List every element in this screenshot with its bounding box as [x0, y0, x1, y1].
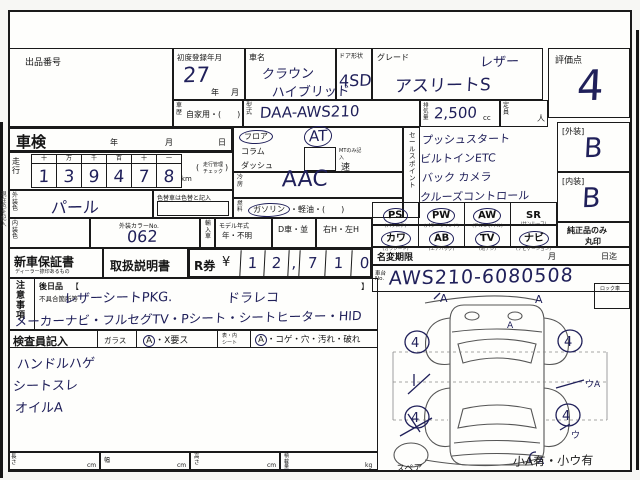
- equipment-code: TV: [475, 231, 500, 248]
- exterior-rating-cell: [外装] B: [557, 122, 630, 172]
- model-year-value: 年・不明: [222, 230, 252, 241]
- mark-windshield: A: [507, 321, 514, 331]
- mark-rear-right: ウ: [571, 430, 580, 441]
- auction-number-label: 出品番号: [25, 55, 61, 68]
- genuine-parts-cell: 純正品のみ 丸印: [557, 222, 630, 248]
- displacement-unit: cc: [483, 114, 491, 122]
- exterior-rating-value: B: [583, 133, 603, 164]
- inspector-glass-cell: ガラス: [97, 331, 137, 347]
- first-registration-year-value: 27: [182, 63, 210, 87]
- chassis-number-cell: 車台 No. AWS210-6080508: [372, 265, 630, 292]
- score-cell: 評価点 4: [548, 48, 630, 118]
- equipment-item-kawa: カワ(カワシート): [372, 225, 419, 248]
- transfer-deadline-cell: 名変期限 月 日迄: [372, 246, 630, 265]
- warranty-cell: 新車保証書 ディーラー捺印あるもの: [8, 248, 103, 278]
- import-cell: 輸入車: [200, 218, 215, 248]
- car-diagram: A A A 4 4 4 4 ウA ウ A: [380, 290, 630, 472]
- shift-at-value: AT: [303, 126, 332, 147]
- mileage-col-header: 十: [32, 155, 56, 164]
- equipment-item-sr: SR(サンルーフ): [510, 202, 557, 225]
- ticket-digit: 1: [324, 250, 351, 276]
- scan-edge-right: [636, 30, 639, 470]
- inspector-block: 検査員記入 ガラス A・X要ス 表・内 シート A・コゲ・穴・汚れ・破れ ハンド…: [8, 330, 378, 452]
- notes-bracket-close: 】: [361, 281, 369, 292]
- model-code-cell: 型式 DAA-AWS210: [243, 100, 420, 127]
- equipment-item-ab: AB(エアバッグ): [418, 225, 465, 248]
- height-label: 高さ: [194, 454, 200, 466]
- inspector-seat-label2: シート: [222, 339, 237, 346]
- notes-hw-line1a: レザーシートPKG.: [63, 286, 172, 307]
- fuel-rest: ・軽油・( ): [290, 205, 344, 214]
- color-change-box: [157, 201, 229, 216]
- sales-point-line: バック カメラ: [422, 168, 492, 185]
- shift-option-column: コラム: [241, 146, 265, 157]
- equipment-item-pw: PW(パワーウインド): [418, 202, 465, 225]
- model-year-label: モデル年式: [219, 221, 249, 230]
- length-cell: 長さ cm: [8, 452, 100, 470]
- model-code-label: 型式: [246, 103, 252, 116]
- displacement-label: 排気量: [423, 103, 429, 121]
- mileage-label: 走行: [12, 158, 20, 176]
- history-label: 車歴: [176, 103, 182, 116]
- height-cell: 高さ cm: [190, 452, 280, 470]
- equipment-grid: PS(パワステ) PW(パワーウインド) AW(アルミホイル) SR(サンルーフ…: [372, 202, 557, 248]
- color-number-value: 062: [126, 227, 158, 247]
- car-name-cell: 車名 クラウン ハイブリッド: [245, 48, 336, 100]
- inspector-note: ハンドルハゲ: [16, 352, 95, 372]
- ticket-digit: 7: [298, 250, 325, 276]
- seat-rest: ・コゲ・穴・汚れ・破れ: [267, 335, 361, 345]
- equipment-code: PW: [427, 208, 456, 225]
- auction-number-cell: 出品番号: [8, 48, 173, 127]
- chassis-number-value: AWS210-6080508: [388, 264, 574, 289]
- headlight-right: [508, 312, 522, 320]
- door-shape-value: 4SD: [338, 71, 372, 91]
- door-shape-label: ドア形状: [339, 51, 367, 60]
- rear-window: [458, 405, 536, 428]
- exterior-color-value: パール: [50, 194, 99, 219]
- door-shape-cell: ドア形状 4SD: [336, 48, 372, 100]
- history-value: 自家用・( ): [186, 109, 240, 120]
- mileage-digit: 9: [81, 164, 106, 190]
- car-name-line1: クラウン: [261, 63, 314, 83]
- mileage-cell: 走行 十1 万3 千9 百4 十7 一8 km ( 走行管理 チェック ): [8, 152, 233, 190]
- warranty-sub: ディーラー捺印あるもの: [15, 268, 70, 275]
- inspector-note: オイルA: [14, 397, 63, 417]
- notes-block: 注意事項 後日品 【 】 不具合箇所等 レザーシートPKG. ドラレコ メーカー…: [8, 278, 378, 330]
- dealer-car-cell: D車・並: [272, 218, 316, 248]
- shift-option-dash: ダッシュ: [241, 160, 273, 171]
- fuel-label: 燃料: [237, 201, 243, 213]
- transfer-until: 日迄: [601, 251, 617, 262]
- right-side-arrow: [556, 380, 584, 388]
- capacity-label: 定員: [503, 103, 509, 116]
- mileage-digit: 8: [156, 164, 181, 190]
- equipment-code: ナビ: [518, 230, 549, 247]
- grade-cell: グレード レザー アスリートS: [372, 48, 543, 100]
- inspector-note: シートスレ: [12, 374, 78, 394]
- genuine-parts-note1: 純正品のみ: [567, 225, 607, 236]
- interior-rating-value: B: [581, 183, 601, 214]
- exterior-rating-label: [外装]: [562, 126, 584, 137]
- history-cell: 車歴 自家用・( ): [173, 100, 243, 127]
- shaken-day: 日: [218, 137, 226, 148]
- inspector-seat-label1: 表・内: [222, 332, 237, 339]
- displacement-cell: 排気量 2,500 cc: [420, 100, 500, 127]
- shift-option-floor: フロア: [239, 130, 273, 144]
- notes-hw-line1b: ドラレコ: [226, 287, 279, 307]
- interior-color-label: 内装色: [12, 221, 18, 241]
- width-cell: 幅 cm: [100, 452, 190, 470]
- mileage-col-header: 万: [57, 155, 81, 164]
- grade-label: グレード: [377, 52, 409, 63]
- sales-point-line: プッシュスタート: [422, 130, 511, 148]
- notes-hw-line2: メーカーナビ・フルセグTV・Pシート・シートヒーター・HID: [14, 305, 362, 330]
- windshield: [458, 339, 536, 363]
- car-name-label: 車名: [249, 52, 265, 63]
- import-label: 輸入車: [205, 221, 211, 241]
- glass-grade-circled: A: [143, 335, 156, 347]
- shaken-month: 月: [165, 137, 173, 148]
- ticket-digit: 1: [239, 250, 264, 276]
- shaken-cell: 車検 年 月 日: [8, 127, 233, 152]
- trunk-line1: [454, 441, 540, 444]
- capacity-cell: 定員 人: [500, 100, 548, 127]
- color-change-cell: 色替車は色替と記入: [153, 190, 233, 218]
- mileage-col-header: 百: [107, 155, 131, 164]
- model-year-cell: モデル年式 年・不明: [215, 218, 272, 248]
- manual-label: 取扱説明書: [110, 257, 170, 274]
- recycle-ticket-cell: R券 ¥ 1 2 , 7 1 0: [188, 248, 372, 278]
- interior-color-cell: 内装色: [8, 218, 90, 248]
- first-registration-month-suffix: 月: [231, 87, 239, 98]
- left-side-marks: [408, 374, 430, 394]
- auction-sheet-scan: 現在色を記入 出品番号 初度登録年月 27 年 月 車名 クラウン ハイブリッド…: [0, 0, 640, 480]
- grade-value: アスリートS: [394, 70, 491, 97]
- load-cell: 積載量 kg: [280, 452, 378, 470]
- handle-cell: 右H・左H: [316, 218, 372, 248]
- manual-cell: 取扱説明書: [103, 248, 188, 278]
- score-value: 4: [576, 61, 605, 110]
- fuel-value: ガソリン・軽油・( ): [248, 203, 344, 217]
- load-label: 積載量: [284, 454, 289, 471]
- headlight-left: [465, 312, 479, 320]
- mark-front-right: A: [535, 293, 543, 306]
- equipment-code: SR: [526, 209, 541, 222]
- ac-cell: 冷房 AAC: [233, 172, 403, 198]
- handle-value: 右H・左H: [323, 224, 359, 235]
- first-registration-cell: 初度登録年月 27 年 月: [173, 48, 245, 100]
- mileage-unit: km: [181, 175, 192, 183]
- equipment-code: AB: [429, 231, 455, 248]
- ac-label: 冷房: [237, 175, 243, 188]
- shift-at-circled: AT: [304, 125, 333, 147]
- exterior-color-label: 外装色: [12, 193, 18, 213]
- equipment-code: カワ: [380, 230, 411, 247]
- mileage-digit: 3: [56, 164, 81, 190]
- sales-point-line: ビルトインETC: [420, 149, 497, 166]
- shift-cell: フロア コラム ダッシュ AT MTのみ記入 速: [233, 127, 403, 172]
- inspector-header: 検査員記入 ガラス A・X要ス 表・内 シート A・コゲ・穴・汚れ・破れ: [9, 331, 377, 348]
- length-unit: cm: [87, 462, 96, 469]
- grade-note: レザー: [479, 51, 519, 71]
- hood-line: [452, 329, 542, 332]
- equipment-item-ps: PS(パワステ): [372, 202, 419, 225]
- wheel-grade-rl: 4: [411, 411, 419, 426]
- shaken-label: 車検: [16, 131, 46, 152]
- recycle-ticket-digits: 1 2 , 7 1 0: [240, 250, 377, 276]
- mark-front-left: A: [440, 292, 448, 305]
- width-unit: cm: [177, 462, 186, 469]
- mark-right-side: ウA: [585, 379, 601, 390]
- mileage-digit-grid: 十1 万3 千9 百4 十7 一8: [31, 154, 182, 188]
- transfer-month: 月: [548, 251, 556, 262]
- dealer-car-value: D車・並: [278, 224, 308, 235]
- wheel-grade-fr: 4: [564, 335, 572, 350]
- margin-note: 現在色を記入: [1, 192, 7, 228]
- ac-value: AAC: [281, 167, 328, 193]
- recycle-ticket-label: R券: [194, 257, 215, 274]
- equipment-item-navi: ナビ(ナビゲーション): [510, 225, 557, 248]
- color-number-cell: 外装カラーNo. 062: [90, 218, 200, 248]
- width-label: 幅: [104, 455, 110, 464]
- exterior-color-cell: 外装色 パール: [8, 190, 153, 218]
- mileage-col-header: 一: [157, 155, 181, 164]
- dimensions-row: 長さ cm 幅 cm 高さ cm 積載量 kg: [8, 452, 378, 470]
- recycle-ticket-yen: ¥: [222, 255, 230, 270]
- inspector-seat-value: A・コゲ・穴・汚れ・破れ: [255, 333, 360, 346]
- spare-label: スペア: [396, 461, 423, 474]
- mileage-note-paren-close: ): [225, 163, 228, 172]
- notes-future-label: 後日品: [39, 281, 63, 292]
- length-label: 長さ: [11, 454, 17, 466]
- capacity-unit: 人: [537, 113, 545, 124]
- inspector-glass-label: ガラス: [104, 335, 126, 346]
- scan-edge-left: [0, 122, 3, 478]
- load-unit: kg: [365, 462, 372, 469]
- glass-rest: ・X要ス: [155, 336, 188, 346]
- ticket-digit: 2: [263, 250, 288, 276]
- inspector-glass-value: A・X要ス: [143, 333, 188, 347]
- seat-grade-circled: A: [255, 334, 267, 346]
- first-registration-label: 初度登録年月: [177, 52, 222, 63]
- model-code-value: DAA-AWS210: [259, 102, 359, 122]
- wheel-grade-fl: 4: [411, 336, 419, 351]
- shift-floor-circled: フロア: [239, 129, 273, 144]
- sales-point-label: セールスポイント: [409, 132, 416, 189]
- inspector-seat-cell: 表・内 シート: [217, 331, 251, 347]
- first-registration-year-suffix: 年: [211, 87, 219, 98]
- equipment-code: AW: [473, 208, 502, 225]
- displacement-value: 2,500: [434, 104, 478, 123]
- mileage-note-paren-open: (: [196, 163, 199, 172]
- interior-rating-cell: [内装] B: [557, 172, 630, 222]
- mileage-digit: 1: [31, 164, 56, 190]
- shift-mt-note: MTのみ記入: [339, 147, 365, 161]
- mileage-digit: 4: [106, 164, 131, 190]
- mileage-col-header: 千: [82, 155, 106, 164]
- transfer-deadline-label: 名変期限: [377, 250, 413, 263]
- shaken-year: 年: [110, 137, 118, 148]
- equipment-code: PS: [383, 208, 408, 225]
- equipment-item-tv: TV(地デジ): [464, 225, 511, 248]
- inspector-label: 検査員記入: [13, 333, 68, 349]
- equipment-item-aw: AW(アルミホイル): [464, 202, 511, 225]
- damage-summary: 小A有・小ウ有: [513, 451, 594, 469]
- mileage-col-header: 十: [132, 155, 156, 164]
- mileage-note1: 走行管理: [203, 161, 223, 168]
- interior-rating-label: [内装]: [562, 176, 584, 187]
- fuel-gasoline-circled: ガソリン: [248, 202, 290, 217]
- mileage-note2: チェック: [203, 168, 223, 175]
- wheel-grade-rr: 4: [562, 409, 570, 424]
- height-unit: cm: [267, 462, 276, 469]
- mileage-digit: 7: [131, 164, 156, 190]
